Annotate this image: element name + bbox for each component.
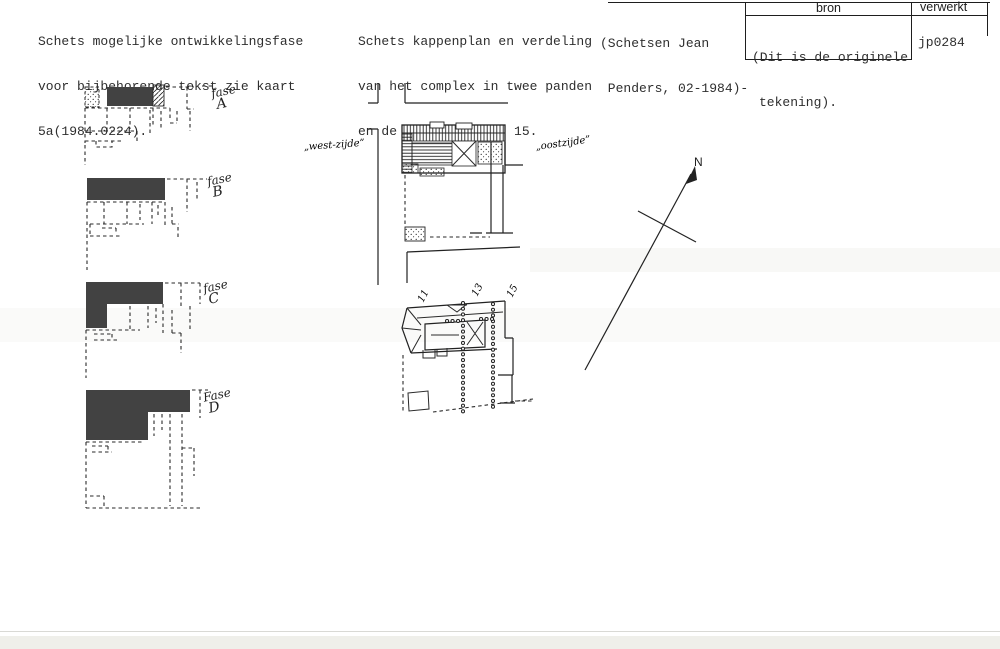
west-side-label: „west-zijde” [303, 138, 365, 153]
roof-plan-sketch: 11 13 15 [395, 283, 540, 423]
compass-north-arrow: N [578, 138, 713, 383]
table-border-mid [911, 2, 912, 60]
col-header-verwerkt: verwerkt [920, 0, 967, 14]
phase-a-sketch [82, 83, 232, 178]
house-number-15: 15 [505, 283, 521, 299]
note-line: Schets kappenplan en verdeling [358, 34, 592, 49]
phase-c-label: fase C [202, 278, 231, 307]
note-line: Penders, 02-1984)- [600, 81, 748, 96]
table-header-underline [745, 15, 988, 16]
scan-band [0, 636, 1000, 649]
table-border-right [987, 2, 988, 36]
house-number-13: 13 [470, 282, 486, 298]
bron-value: (Dit is de originele tekening). [752, 20, 908, 140]
col-header-bron: bron [746, 1, 911, 15]
verwerkt-value: jp0284 [918, 35, 965, 50]
north-label: N [694, 155, 703, 169]
note-line: Schets mogelijke ontwikkelingsfase [38, 34, 303, 49]
site-plan-sketch: „west-zijde” „oostzijde” [300, 78, 590, 293]
archive-table: bron verwerkt (Dit is de originele teken… [605, 0, 990, 62]
paper-bottom-edge [0, 631, 1000, 632]
house-number-11: 11 [416, 288, 432, 304]
phase-a-label: fase A [210, 83, 239, 112]
phase-b-label: fase B [206, 171, 235, 200]
bron-value-line: tekening). [752, 95, 908, 110]
scanned-document-sheet: Schets mogelijke ontwikkelingsfase voor … [0, 0, 1000, 649]
bron-value-line: (Dit is de originele [752, 50, 908, 65]
